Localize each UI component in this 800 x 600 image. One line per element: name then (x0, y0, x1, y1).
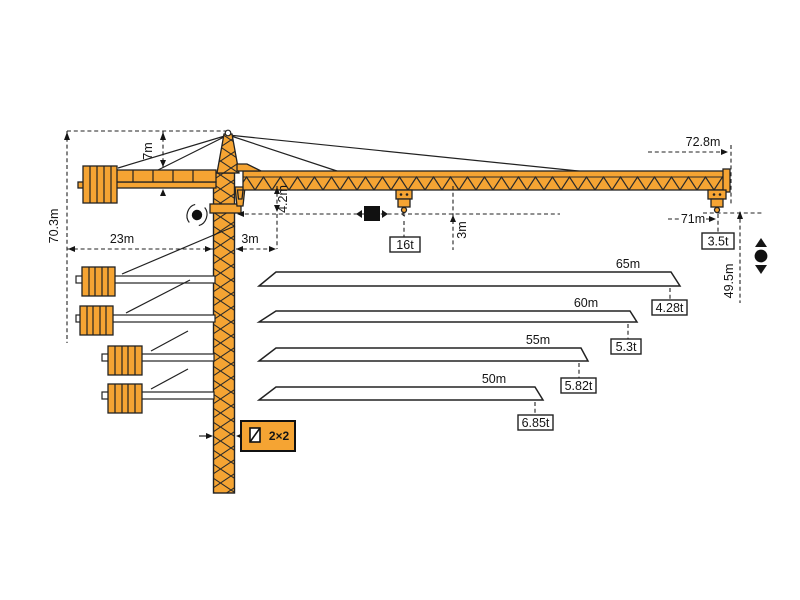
apex-pin (225, 130, 231, 136)
variant-capacity-label: 5.82t (565, 379, 593, 393)
trolley-travel-square (364, 206, 380, 221)
jib-variant-50m: 50m 6.85t (259, 372, 553, 430)
dim-hook-drop: 3m (450, 186, 469, 250)
arrow-right-icon (721, 149, 728, 155)
arrow-up-icon (737, 211, 743, 219)
max-hook-radius-label: 71m (681, 212, 705, 226)
leader-line (151, 369, 188, 389)
arrow-left-icon (68, 246, 75, 252)
jib-outline-50m (259, 387, 543, 400)
tower-crane-diagram: 70.3m 7m 23m 3m 4.2m 3m (0, 0, 800, 600)
counterweight-config-3 (102, 331, 214, 375)
mast-section-icon (250, 428, 260, 442)
trolley-travel-icon (356, 206, 388, 221)
main-jib (237, 164, 730, 192)
ballast-stack (80, 306, 113, 335)
total-height-label: 70.3m (47, 209, 61, 244)
counterweight-stack (83, 166, 117, 203)
max-capacity-callout: 16t (390, 221, 420, 252)
mast-section-label: 2×2 (269, 429, 290, 443)
jib-tip-plate (723, 169, 730, 192)
variant-length-label: 60m (574, 296, 598, 310)
variant-capacity-label: 5.3t (616, 340, 637, 354)
slewing-icon (185, 203, 210, 227)
max-capacity-label: 16t (396, 238, 414, 252)
tip-capacity-label: 3.5t (708, 235, 729, 249)
jib-lattice (243, 171, 728, 190)
leader-line (126, 280, 190, 313)
apex-lattice (217, 134, 239, 173)
dim-counterjib-radius: 23m (67, 232, 213, 252)
hook-drop-label: 3m (455, 221, 469, 238)
tie-rod-lines (118, 135, 588, 172)
tip-trolley-sheave (713, 193, 716, 196)
ballast-stack (108, 384, 142, 413)
hoisting-dot (755, 250, 768, 263)
trolley-hook-tip (708, 190, 726, 213)
counter-jib (78, 166, 216, 203)
arrow-right-icon (382, 210, 388, 218)
jib-variant-55m: 55m 5.82t (259, 333, 596, 393)
slew-offset-label: 3m (241, 232, 258, 246)
tip-trolley-sheave (719, 193, 722, 196)
tower-mast (214, 173, 235, 493)
variant-length-label: 50m (482, 372, 506, 386)
slewing-dot (190, 208, 203, 221)
mast-lattice (214, 173, 235, 493)
arrow-up-icon (160, 189, 166, 196)
dim-slew-offset: 3m (236, 214, 277, 252)
arrow-right-icon (709, 216, 716, 222)
arrow-left-icon (236, 246, 243, 252)
trolley-frame (396, 190, 412, 199)
arrow-down-icon (755, 265, 767, 274)
variant-capacity-label: 4.28t (656, 301, 684, 315)
counterjib-radius-label: 23m (110, 232, 134, 246)
arrow-right-icon (205, 246, 212, 252)
tie-rods (118, 135, 588, 172)
arrow-right-icon (206, 433, 213, 439)
arrow-up-icon (755, 238, 767, 247)
ballast-stack (108, 346, 142, 375)
head-height-label: 7m (141, 142, 155, 159)
jib-outline-60m (259, 311, 637, 322)
hook-height-label: 49.5m (722, 264, 736, 299)
dim-hook-height: 49.5m (722, 211, 743, 303)
jib-outline-65m (259, 272, 680, 286)
trolley-hook-mid (396, 190, 412, 216)
ballast-stack (82, 267, 115, 296)
hook-block (398, 199, 410, 207)
tip-hook-eye (715, 208, 720, 213)
jib-variant-65m: 65m 4.28t (259, 257, 687, 315)
counterweight-config-1 (76, 226, 235, 296)
hook-eye (402, 208, 407, 213)
arrow-right-icon (269, 246, 276, 252)
jib-outline-55m (259, 348, 588, 361)
trolley-sheave (400, 193, 403, 196)
trolley-sheave (406, 193, 409, 196)
hoisting-icon (755, 238, 768, 274)
tip-hook-block (711, 199, 723, 207)
arrow-up-icon (64, 132, 70, 140)
variant-length-label: 65m (616, 257, 640, 271)
arrow-up-icon (450, 215, 456, 222)
dim-jib-depth: 4.2m (274, 185, 290, 213)
jib-depth-label: 4.2m (276, 185, 290, 213)
jib-length-overall-label: 72.8m (686, 135, 721, 149)
crane-diagram-page: 70.3m 7m 23m 3m 4.2m 3m (0, 0, 800, 600)
dim-max-hook-radius: 71m (668, 212, 718, 233)
arrow-up-icon (160, 132, 166, 140)
arrow-left-icon (356, 210, 362, 218)
leader-line (151, 331, 188, 351)
tip-capacity-callout: 3.5t (702, 233, 734, 249)
variant-capacity-label: 6.85t (522, 416, 550, 430)
tip-trolley-frame (708, 190, 726, 199)
variant-length-label: 55m (526, 333, 550, 347)
jib-root-section (237, 164, 261, 171)
jib-variant-60m: 60m 5.3t (259, 296, 641, 354)
